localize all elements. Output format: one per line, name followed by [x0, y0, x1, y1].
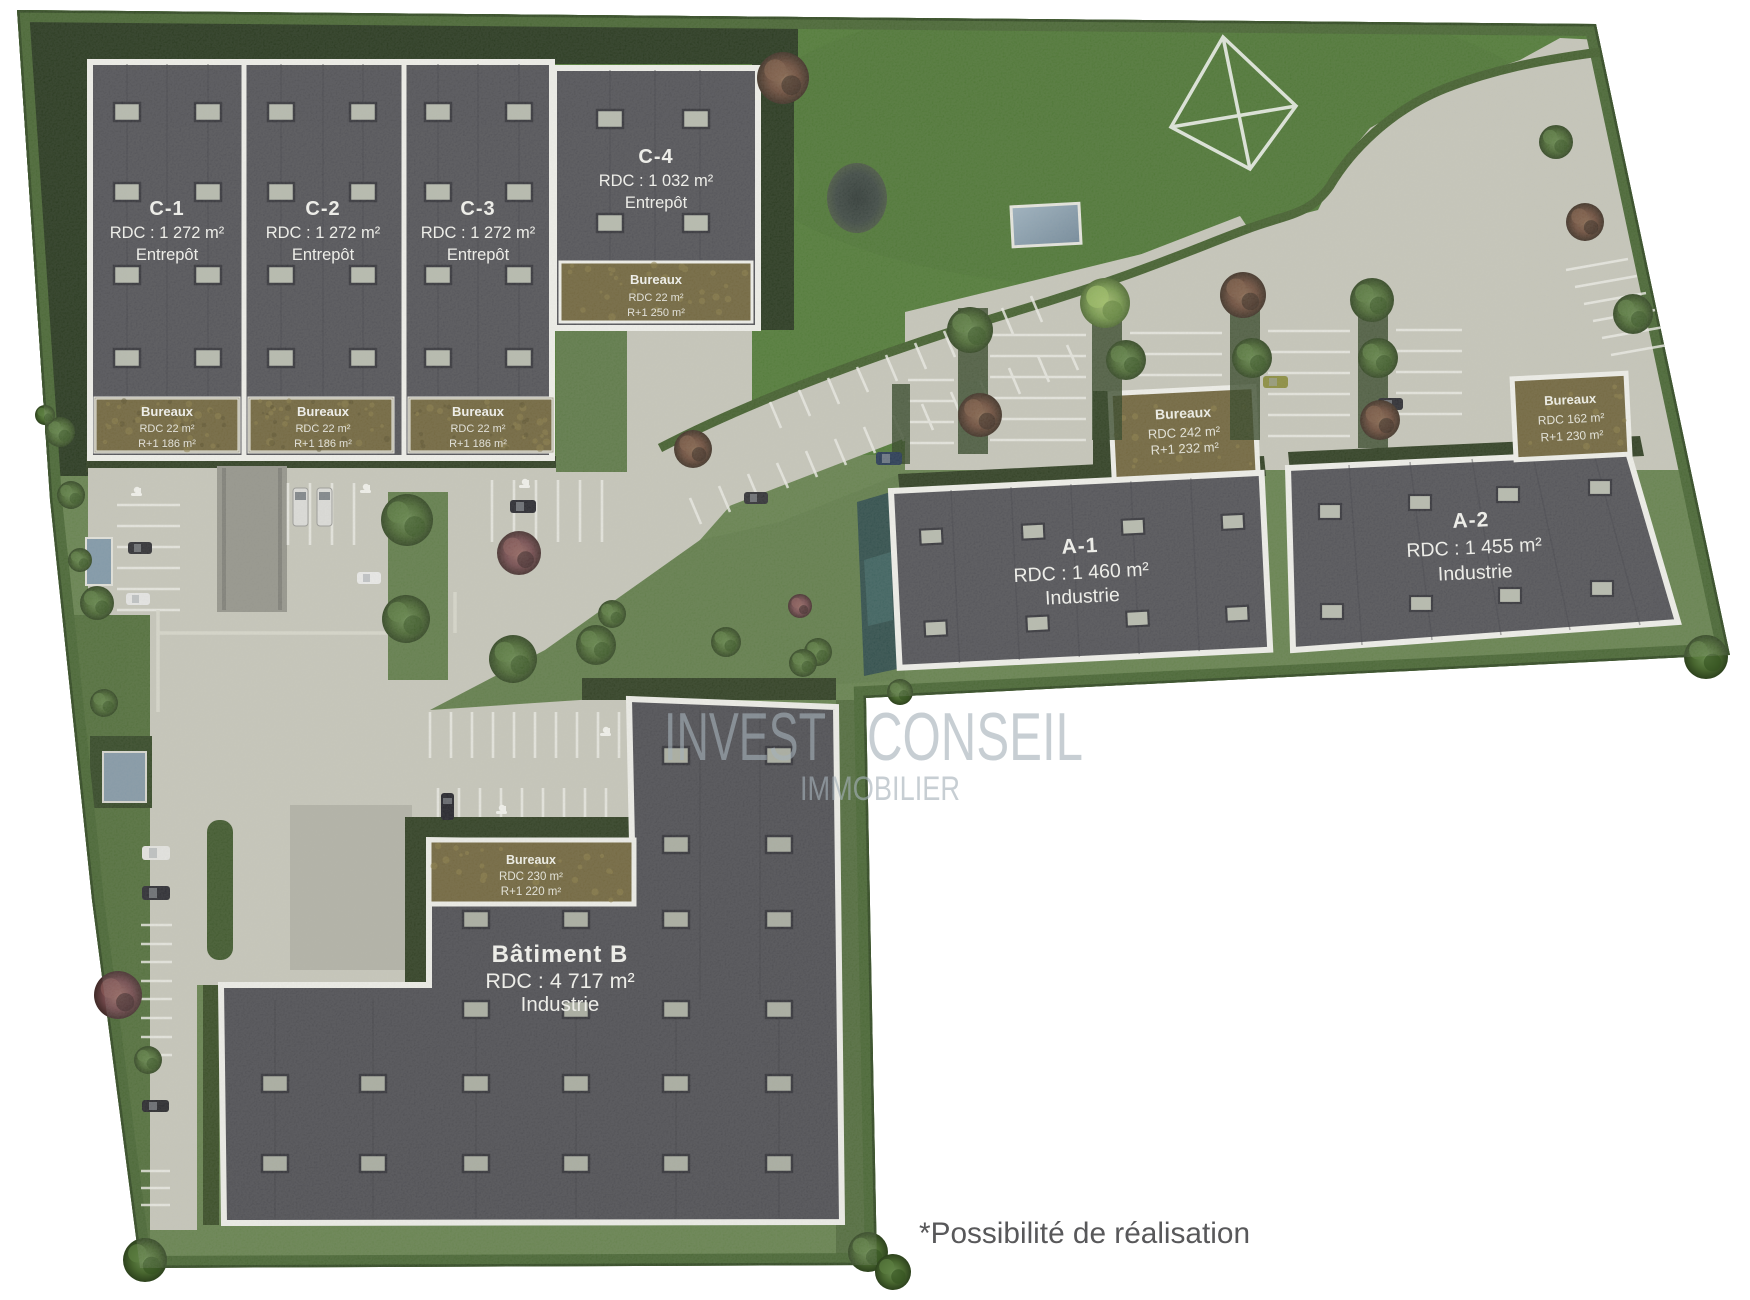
svg-text:INVEST: INVEST	[664, 699, 826, 775]
svg-text:*Possibilité de réalisation: *Possibilité de réalisation	[919, 1217, 1250, 1250]
svg-text:CONSEIL: CONSEIL	[867, 699, 1083, 775]
svg-text:IMMOBILIER: IMMOBILIER	[800, 770, 960, 808]
